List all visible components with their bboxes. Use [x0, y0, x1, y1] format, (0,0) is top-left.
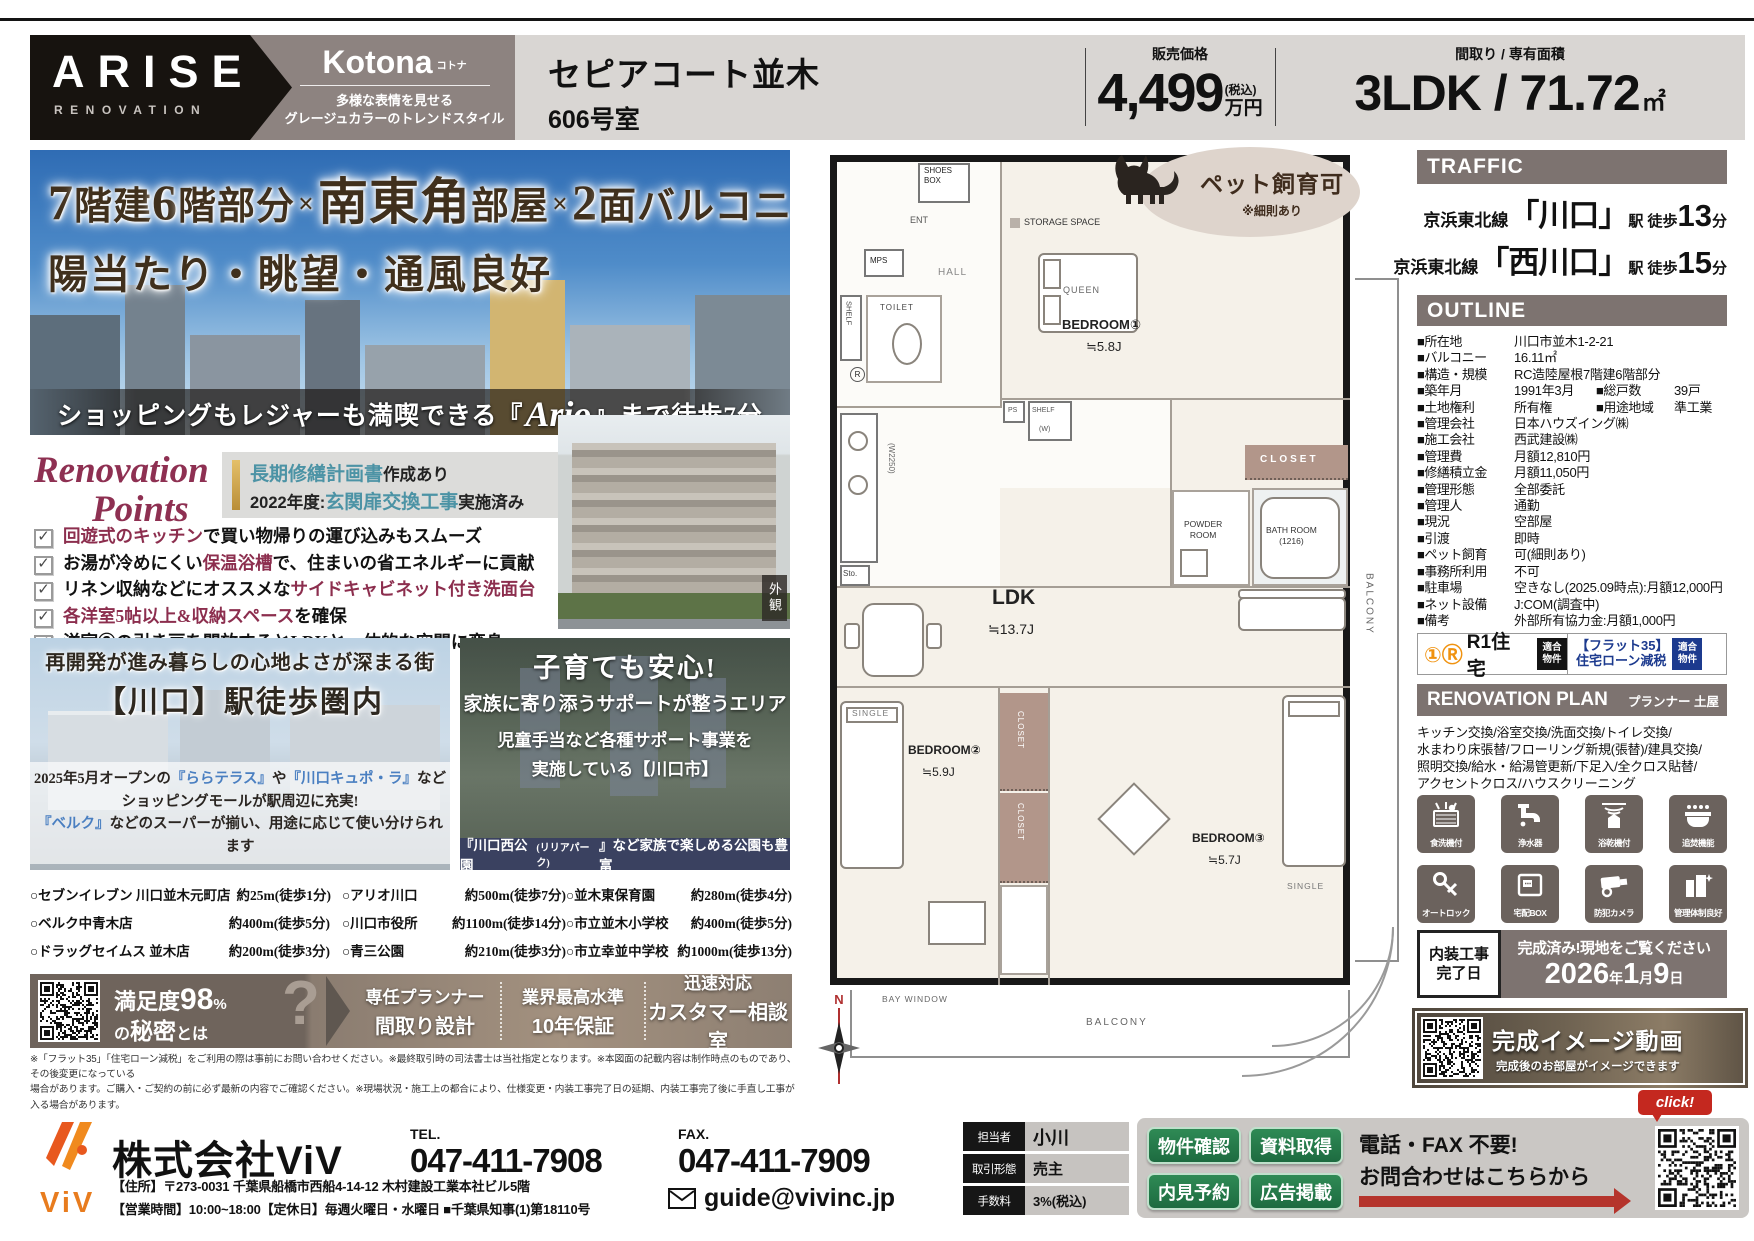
feature-warranty: 業界最高水準10年保証	[508, 974, 638, 1048]
video-banner-title: 完成イメージ動画	[1492, 1022, 1684, 1056]
floorplan-label: CLOSET	[1015, 803, 1025, 841]
floorplan-label: ENT	[910, 215, 928, 226]
hero-headline: 7階建6階部分×南東角部屋×2面バルコニー 陽当たり・眺望・通風良好	[48, 162, 790, 300]
wall	[837, 406, 1000, 408]
outline-row: ■ペット飼育可(細則あり)	[1417, 547, 1729, 563]
outline-row: ■備考外部所有協力金:月額1,000円	[1417, 613, 1729, 629]
company-logo-mark	[36, 1120, 108, 1186]
agent-info-row: 手数料3%(税込)	[963, 1186, 1129, 1215]
cat-icon	[1102, 145, 1188, 207]
outline-row: ■修繕積立金月額11,050円	[1417, 465, 1729, 481]
equipment-tile-autolock: オートロック	[1417, 865, 1475, 923]
video-qr-code[interactable]	[1421, 1017, 1483, 1079]
outline-row: ■構造・規模RC造陸屋根7階建6階部分	[1417, 367, 1729, 383]
floorplan-label: ≒5.7J	[1208, 853, 1241, 868]
completion-label: 内装工事完了日	[1417, 930, 1501, 998]
contact-cta: 電話・FAX 不要! お問合わせはこちらから	[1359, 1130, 1590, 1193]
series-name: Kotona	[322, 44, 432, 80]
layout-unit: ㎡	[1642, 89, 1666, 118]
deliverybox-icon	[1515, 870, 1545, 900]
pet-allowed-badge: ペット飼育可 ※細則あり	[1140, 147, 1360, 237]
floorplan-label: BALCONY	[1086, 1017, 1148, 1030]
renovation-plan-line: 水まわり床張替/フローリング新規(張替)/建具交換/	[1417, 741, 1729, 758]
disclaimer-line1: ※「フラット35」「住宅ローン減税」をご利用の際は事前にお問い合わせください。※…	[30, 1052, 798, 1082]
equipment-tile-dishwasher: 食洗機付	[1417, 795, 1475, 853]
r1-tag: 適合物件	[1537, 638, 1567, 670]
renovation-point-item: ✓お湯が冷めにくい保温浴槽で、住まいの省エネルギーに貢献	[34, 553, 574, 575]
balcony-curve	[1272, 927, 1394, 1047]
desk	[928, 901, 986, 945]
brand-name: ARISE	[30, 49, 292, 94]
camera-icon	[1599, 870, 1629, 900]
repair-plan-note-line1: 長期修繕計画書作成あり	[250, 461, 564, 489]
hours-line: 【営業時間】10:00~18:00【定休日】毎週火曜日・水曜日 ■千葉県知事(1…	[112, 1199, 590, 1222]
r1-icon: ①Ⓡ	[1424, 639, 1463, 669]
floorplan-label: SINGLE	[1287, 881, 1324, 892]
disclaimer: ※「フラット35」「住宅ローン減税」をご利用の際は事前にお問い合わせください。※…	[30, 1052, 798, 1113]
floorplan-label: BEDROOM②	[908, 743, 981, 758]
fax-block: FAX. 047-411-7909	[678, 1126, 870, 1180]
floorplan-label: CLOSET	[1015, 711, 1025, 749]
action-button[interactable]: 物件確認	[1147, 1127, 1241, 1164]
flat35-tag: 適合物件	[1672, 638, 1702, 670]
disclaimer-line2: 場合があります。ご購入・ご契約の前に必ず最新の内容でご確認ください。※現場状況・…	[30, 1082, 798, 1112]
pet-badge-sub: ※細則あり	[1200, 202, 1344, 219]
renovation-plan-items: キッチン交換/浴室交換/洗面交換/トイレ交換/水まわり床張替/フローリング新規(…	[1417, 724, 1729, 792]
outline-row: ■所在地川口市並木1-2-21	[1417, 334, 1729, 350]
hero-photo: 7階建6階部分×南東角部屋×2面バルコニー 陽当たり・眺望・通風良好 ショッピン…	[30, 150, 790, 435]
promo-childcare: 子育ても安心! 家族に寄り添うサポートが整うエリア 児童手当など各種サポート事業…	[460, 638, 790, 870]
wall	[837, 686, 1350, 688]
tel-number[interactable]: 047-411-7908	[410, 1142, 602, 1180]
equipment-tile-reheat: 追焚機能	[1669, 795, 1727, 853]
planner-name: プランナー 土屋	[1628, 691, 1719, 710]
outline-row: ■バルコニー16.11㎡	[1417, 350, 1729, 366]
management-icon	[1683, 870, 1713, 900]
action-button[interactable]: 内見予約	[1147, 1173, 1241, 1210]
facility-row: ○ドラッグセイムス 並木店約200m(徒歩3分)	[30, 940, 330, 960]
satisfaction-banner: 満足度98% の秘密とは ? 専任プランナー間取り設計 業界最高水準10年保証 …	[30, 974, 792, 1048]
outline-row: ■管理費月額12,810円	[1417, 449, 1729, 465]
contact-qr-code[interactable]	[1655, 1126, 1739, 1210]
floorplan-label: SHELF	[1032, 407, 1055, 416]
r1-badge: ①Ⓡ R1住宅 適合物件	[1418, 634, 1568, 674]
dishwasher-icon	[1431, 800, 1461, 830]
pet-badge-main: ペット飼育可	[1200, 165, 1344, 199]
floorplan-label: LDK	[992, 585, 1035, 611]
email-block: guide@vivinc.jp	[668, 1184, 895, 1213]
property-title: セピアコート並木 606号室	[548, 48, 820, 136]
renovation-point-item: ✓回遊式のキッチンで買い物帰りの運び込みもスムーズ	[34, 526, 574, 548]
pillow	[1288, 701, 1340, 717]
floorplan-label: (W)	[1039, 426, 1050, 435]
outline-row: ■土地権利所有権■用途地域準工業	[1417, 400, 1729, 416]
wall	[837, 586, 1350, 588]
outline-row: ■駐車場空きなし(2025.09時点):月額12,000円	[1417, 580, 1729, 596]
wall	[1000, 398, 1350, 400]
feature-planner: 専任プランナー間取り設計	[356, 974, 494, 1048]
facility-row: ○セブンイレブン 川口並木元町店約25m(徒歩1分)	[30, 884, 330, 904]
single-bed	[840, 701, 904, 869]
washing-machine	[1180, 549, 1208, 577]
pillow	[1043, 259, 1061, 289]
outline-row: ■施工会社西武建設㈱	[1417, 432, 1729, 448]
repair-plan-note-line2: 2022年度:玄関扉交換工事実施済み	[250, 489, 564, 517]
renovation-point-item: ✓リネン収納などにオススメなサイドキャビネット付き洗面台	[34, 579, 574, 601]
series-ruby: コトナ	[437, 61, 467, 72]
floorplan-label: BATH ROOM (1216)	[1266, 525, 1317, 546]
outline-row: ■築年月1991年3月■総戸数39戸	[1417, 383, 1729, 399]
inner-hall-zone	[1000, 400, 1170, 488]
floorplan-label: QUEEN	[1063, 285, 1100, 296]
outline-header: OUTLINE	[1417, 295, 1727, 326]
floorplan-label: ≒5.9J	[922, 765, 955, 780]
address-line: 【住所】〒273-0031 千葉県船橋市西船4-14-12 木村建設工業本社ビル…	[112, 1176, 590, 1199]
pillow	[1043, 295, 1061, 325]
floorplan-label: ≒5.8J	[1086, 339, 1121, 355]
header-divider	[1085, 48, 1086, 126]
property-unit: 606号室	[548, 100, 820, 136]
facility-row: ○ベルク中青木店約400m(徒歩5分)	[30, 912, 330, 932]
equipment-icon-grid: 食洗機付浄水器浴乾機付追焚機能オートロック宅配BOX防犯カメラ管理体制良好	[1417, 795, 1729, 923]
click-bubble[interactable]: click!	[1638, 1090, 1712, 1115]
fax-label: FAX.	[678, 1126, 870, 1142]
renovation-plan-line: キッチン交換/浴室交換/洗面交換/トイレ交換/	[1417, 724, 1729, 741]
checkbox-icon: ✓	[34, 609, 53, 628]
facility-row: ○市立幸並中学校約1000m(徒歩13分)	[566, 940, 792, 960]
layout-value: 3LDK / 71.72	[1354, 68, 1639, 118]
kitchen-sink	[848, 431, 868, 451]
facility-row: ○青三公園約210m(徒歩3分)	[342, 940, 566, 960]
sofa	[1238, 597, 1346, 631]
tel-block: TEL. 047-411-7908	[410, 1126, 602, 1180]
completion-info: 完成済み!現地をご覧ください 2026年1月9日	[1501, 930, 1727, 998]
exterior-label: 外観	[762, 575, 787, 621]
sofa-back	[1238, 589, 1346, 599]
hero-headline-1: 7階建6階部分×南東角部屋×2面バルコニー	[48, 162, 790, 234]
equipment-tile-management: 管理体制良好	[1669, 865, 1727, 923]
promo-kawaguchi-title: 再開発が進み暮らしの心地よさが深まる街 【川口】駅徒歩圏内	[30, 646, 450, 721]
feature-support: 迅速対応カスタマー相談室	[648, 974, 788, 1048]
outline-row: ■管理人通勤	[1417, 498, 1729, 514]
floor-plan: SHOES BOXENTSTORAGE SPACEMPSHALLSHELFTOI…	[810, 145, 1410, 1145]
dotted-separator	[500, 982, 502, 1040]
top-rule	[0, 18, 1754, 21]
floorplan-label: BEDROOM①	[1062, 317, 1141, 333]
storage-swatch	[1010, 218, 1020, 228]
series-tagline-2: グレージュカラーのトレンドスタイル	[274, 110, 515, 128]
company-logo: ViV	[36, 1120, 108, 1220]
satisfaction-lead: 満足度98% の秘密とは	[114, 982, 227, 1046]
facility-row: ○アリオ川口約500m(徒歩7分)	[342, 884, 566, 904]
brand-subtitle: RENOVATION	[30, 103, 292, 117]
single-bed	[1282, 695, 1346, 867]
floorplan-label: TOILET	[880, 303, 914, 313]
station-row: 京浜東北線「西川口」駅 徒歩15分	[1417, 237, 1727, 282]
exterior-hedge	[558, 593, 790, 619]
price-block: 販売価格 4,499 (税込) 万円	[1090, 44, 1270, 120]
floorplan-label: BAY WINDOW	[882, 994, 948, 1005]
price-tax: (税込)	[1225, 83, 1257, 97]
purifier-icon	[1515, 800, 1545, 830]
outline-row: ■管理会社日本ハウズイング㈱	[1417, 416, 1729, 432]
station-row: 京浜東北線「川口」駅 徒歩13分	[1417, 190, 1727, 235]
header-divider	[1275, 48, 1276, 126]
kitchen-stove	[848, 475, 868, 495]
compass-icon: N	[816, 992, 862, 1088]
floorplan-label: SHOES BOX	[924, 166, 952, 186]
video-banner-subtitle: 完成後のお部屋がイメージできます	[1496, 1058, 1680, 1074]
agent-info-table: 担当者小川取引形態売主手数料3%(税込)	[963, 1122, 1129, 1218]
chevron-icon	[326, 976, 350, 1046]
arrow-right-icon	[1359, 1196, 1615, 1207]
dining-chair	[844, 623, 860, 649]
equipment-tile-deliverybox: 宅配BOX	[1501, 865, 1559, 923]
exterior-photo: 外観	[558, 415, 790, 629]
floorplan-label: PS	[1008, 407, 1017, 416]
tel-label: TEL.	[410, 1126, 602, 1142]
exterior-road	[558, 619, 790, 629]
floorplan-label: Sto.	[843, 569, 857, 579]
floorplan-label: R	[850, 367, 865, 382]
certification-badges: ①Ⓡ R1住宅 適合物件 【フラット35】住宅ローン減税 適合物件	[1417, 633, 1727, 675]
traffic-header: TRAFFIC	[1417, 150, 1727, 184]
checkbox-icon: ✓	[34, 582, 53, 601]
facility-row: ○川口市役所約1100m(徒歩14分)	[342, 912, 566, 932]
floorplan-label: (W2250)	[886, 443, 896, 474]
r1-name: R1住宅	[1467, 627, 1529, 681]
floorplan-label: SHELF	[844, 301, 853, 325]
agent-info-row: 取引形態売主	[963, 1154, 1129, 1183]
outline-row: ■現況空部屋	[1417, 514, 1729, 530]
company-logo-text: ViV	[40, 1187, 95, 1220]
promo-kawaguchi: 再開発が進み暮らしの心地よさが深まる街 【川口】駅徒歩圏内 2025年5月オープ…	[30, 638, 450, 870]
completion-date: 2026年1月9日	[1501, 958, 1727, 991]
floorplan-label: MPS	[870, 256, 887, 266]
floorplan-label: CLOSET	[1260, 454, 1319, 467]
question-mark: ?	[282, 974, 320, 1039]
floorplan-label: POWDER ROOM	[1184, 519, 1222, 540]
renovation-plan-line: アクセントクロス/ハウスクリーニング	[1417, 775, 1729, 792]
compass-north-label: N	[834, 992, 843, 1007]
fax-number: 047-411-7909	[678, 1142, 870, 1180]
autolock-icon	[1431, 870, 1461, 900]
series-tagline-1: 多様な表情を見せる	[274, 92, 515, 110]
layout-block: 間取り / 専有面積 3LDK / 71.72 ㎡	[1280, 44, 1740, 118]
reheat-icon	[1683, 800, 1713, 830]
facility-row: ○並木東保育園約280m(徒歩4分)	[566, 884, 792, 904]
price-value: 4,499	[1097, 66, 1222, 120]
layout-label: 間取り / 専有面積	[1280, 44, 1740, 64]
contact-panel: 物件確認資料取得内見予約広告掲載 電話・FAX 不要! お問合わせはこちらから	[1137, 1118, 1749, 1218]
series-divider	[300, 85, 490, 86]
price-unit: 万円	[1225, 98, 1263, 119]
completion-box: 内装工事完了日 完成済み!現地をご覧ください 2026年1月9日	[1417, 930, 1727, 998]
price-label: 販売価格	[1090, 44, 1270, 64]
wall	[1048, 686, 1050, 985]
closet-lower	[1000, 885, 1048, 975]
dotted-separator	[644, 982, 646, 1040]
dining-table	[862, 603, 924, 677]
promo-kawaguchi-body: 2025年5月オープンの『ららテラス』や『川口キュポ・ラ』など ショッピングモー…	[30, 762, 450, 864]
nearby-facilities-list: ○セブンイレブン 川口並木元町店約25m(徒歩1分)○ベルク中青木店約400m(…	[30, 884, 792, 960]
email-address[interactable]: guide@vivinc.jp	[704, 1184, 895, 1213]
company-address: 【住所】〒273-0031 千葉県船橋市西船4-14-12 木村建設工業本社ビル…	[112, 1176, 590, 1222]
floorplan-label: BALCONY	[1362, 573, 1375, 635]
dining-chair	[926, 623, 942, 649]
outline-row: ■引渡即時	[1417, 531, 1729, 547]
action-button[interactable]: 広告掲載	[1249, 1173, 1343, 1210]
renovation-points-title: Renovation Points	[34, 452, 209, 530]
flat35-badge: 【フラット35】住宅ローン減税 適合物件	[1568, 634, 1726, 674]
toilet-fixture	[892, 323, 922, 365]
flyer-page: ARISE RENOVATION Kotonaコトナ 多様な表情を見せる グレー…	[0, 0, 1754, 1241]
outline-row: ■事務所利用不可	[1417, 564, 1729, 580]
equipment-tile-bathdryer: 浴乾機付	[1585, 795, 1643, 853]
property-name: セピアコート並木	[548, 48, 820, 96]
promo-childcare-text: 子育ても安心! 家族に寄り添うサポートが整うエリア 児童手当など各種サポート事業…	[460, 646, 790, 780]
floorplan-label: STORAGE SPACE	[1024, 217, 1100, 228]
promo-childcare-footer: 『川口西公園(リリアパーク)』など家族で楽しめる公園も豊富	[460, 838, 790, 870]
contact-buttons: 物件確認資料取得内見予約広告掲載	[1147, 1127, 1343, 1210]
outline-row: ■管理形態全部委託	[1417, 482, 1729, 498]
bathdryer-icon	[1599, 800, 1629, 830]
renovation-plan-line: 照明交換/給水・給湯管更新/下足入/全クロス貼替/	[1417, 758, 1729, 775]
facility-row: ○市立並木小学校約400m(徒歩5分)	[566, 912, 792, 932]
floorplan-label: ≒13.7J	[988, 621, 1034, 639]
outline-row: ■ネット設備J:COM(調査中)	[1417, 597, 1729, 613]
action-button[interactable]: 資料取得	[1249, 1127, 1343, 1164]
envelope-icon	[668, 1188, 696, 1209]
checkbox-icon: ✓	[34, 529, 53, 548]
brand-logo: ARISE RENOVATION	[30, 35, 292, 140]
agent-info-row: 担当者小川	[963, 1122, 1129, 1151]
exterior-building	[572, 443, 776, 593]
renovation-point-item: ✓各洋室5帖以上&収納スペースを確保	[34, 606, 574, 628]
station-access: 京浜東北線「川口」駅 徒歩13分京浜東北線「西川口」駅 徒歩15分	[1417, 190, 1727, 284]
floorplan-label: HALL	[938, 267, 967, 280]
checkbox-icon: ✓	[34, 556, 53, 575]
video-banner: 完成イメージ動画 完成後のお部屋がイメージできます	[1412, 1008, 1748, 1088]
repair-plan-note: 長期修繕計画書作成あり 2022年度:玄関扉交換工事実施済み	[222, 452, 564, 518]
equipment-tile-purifier: 浄水器	[1501, 795, 1559, 853]
renovation-plan-header: RENOVATION PLAN プランナー 土屋	[1417, 684, 1727, 716]
outline-table: ■所在地川口市並木1-2-21■バルコニー16.11㎡■構造・規模RC造陸屋根7…	[1417, 334, 1729, 629]
wall	[1000, 162, 1002, 408]
satisfaction-qr-code[interactable]	[38, 980, 100, 1042]
floorplan-label: BEDROOM③	[1192, 831, 1265, 846]
floorplan-label: SINGLE	[852, 708, 889, 719]
hero-headline-2: 陽当たり・眺望・通風良好	[48, 242, 790, 300]
equipment-tile-camera: 防犯カメラ	[1585, 865, 1643, 923]
